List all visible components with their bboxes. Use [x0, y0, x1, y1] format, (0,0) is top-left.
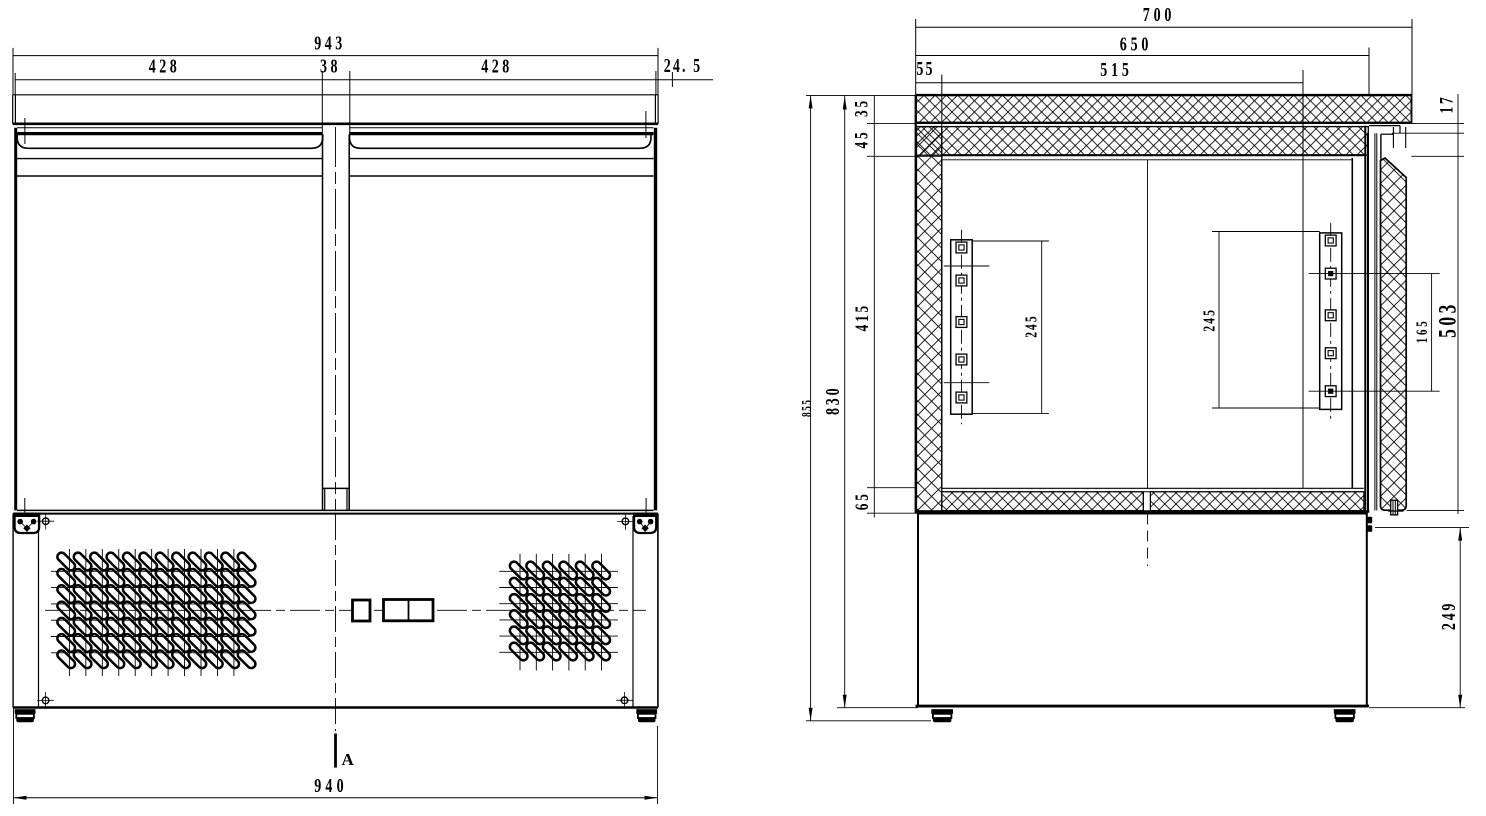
svg-text:428: 428 — [481, 55, 512, 77]
svg-text:38: 38 — [320, 55, 341, 77]
svg-text:A: A — [342, 750, 355, 769]
svg-text:415: 415 — [850, 303, 872, 331]
svg-text:855: 855 — [799, 399, 814, 417]
svg-text:35: 35 — [850, 98, 872, 117]
svg-text:245: 245 — [1201, 308, 1220, 332]
svg-text:245: 245 — [1023, 314, 1042, 338]
svg-text:515: 515 — [1100, 59, 1133, 81]
svg-text:17: 17 — [1435, 95, 1457, 114]
svg-text:165: 165 — [1413, 319, 1430, 344]
svg-text:940: 940 — [314, 775, 348, 797]
svg-text:943: 943 — [314, 32, 345, 54]
svg-text:503: 503 — [1433, 301, 1461, 338]
svg-text:428: 428 — [149, 55, 180, 77]
svg-text:700: 700 — [1143, 4, 1176, 26]
svg-text:24. 5: 24. 5 — [664, 55, 702, 77]
svg-text:65: 65 — [850, 491, 872, 510]
svg-text:830: 830 — [822, 386, 844, 415]
svg-text:249: 249 — [1438, 601, 1460, 630]
svg-text:45: 45 — [850, 130, 872, 149]
svg-text:650: 650 — [1120, 33, 1153, 55]
svg-text:55: 55 — [916, 58, 934, 80]
